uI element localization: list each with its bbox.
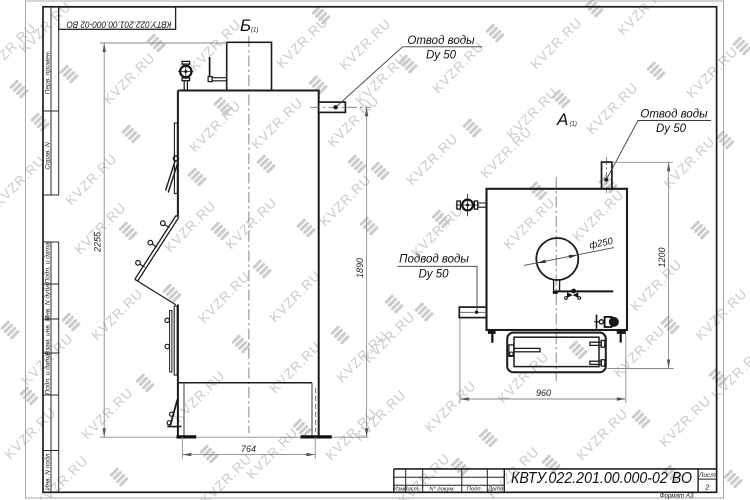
svg-text:(1): (1)	[251, 28, 258, 34]
svg-text:Инв. N подл.: Инв. N подл.	[44, 452, 52, 491]
svg-text:Дата: Дата	[487, 487, 504, 493]
svg-text:КВТУ.022.201.00.000-02 ВО: КВТУ.022.201.00.000-02 ВО	[66, 19, 172, 30]
svg-text:Лист: Лист	[403, 487, 419, 493]
svg-text:Подп. и дата: Подп. и дата	[44, 353, 52, 395]
svg-text:N° докум.: N° докум.	[429, 487, 455, 493]
svg-text:Лист: Лист	[698, 472, 716, 479]
svg-text:960: 960	[536, 388, 551, 398]
svg-text:А: А	[556, 110, 568, 129]
svg-text:Взам. инв. N: Взам. инв. N	[45, 317, 52, 356]
svg-text:Инв. N дубл.: Инв. N дубл.	[44, 282, 52, 320]
svg-text:764: 764	[241, 444, 256, 454]
svg-text:Dy 50: Dy 50	[426, 50, 457, 62]
svg-text:Справ. N: Справ. N	[45, 142, 52, 170]
svg-text:КВТУ.022.201.00.000-02 ВО: КВТУ.022.201.00.000-02 ВО	[511, 470, 692, 487]
svg-text:Формат А3: Формат А3	[660, 493, 694, 500]
svg-text:Dy 50: Dy 50	[418, 269, 449, 281]
svg-text:Б: Б	[240, 16, 251, 35]
svg-text:Отвод воды: Отвод воды	[640, 109, 708, 121]
svg-text:Подп.: Подп.	[467, 487, 482, 493]
svg-text:(1): (1)	[570, 122, 577, 128]
svg-text:Отвод воды: Отвод воды	[407, 35, 475, 47]
svg-text:1890: 1890	[355, 258, 365, 278]
svg-text:2: 2	[704, 483, 710, 492]
svg-text:Dy 50: Dy 50	[656, 123, 687, 135]
svg-text:Перв. примен.: Перв. примен.	[45, 50, 52, 94]
svg-text:Подвод воды: Подвод воды	[399, 254, 469, 266]
svg-text:Подп. и дата: Подп. и дата	[44, 242, 52, 284]
svg-text:2255: 2255	[93, 231, 103, 253]
svg-text:1200: 1200	[657, 247, 667, 267]
